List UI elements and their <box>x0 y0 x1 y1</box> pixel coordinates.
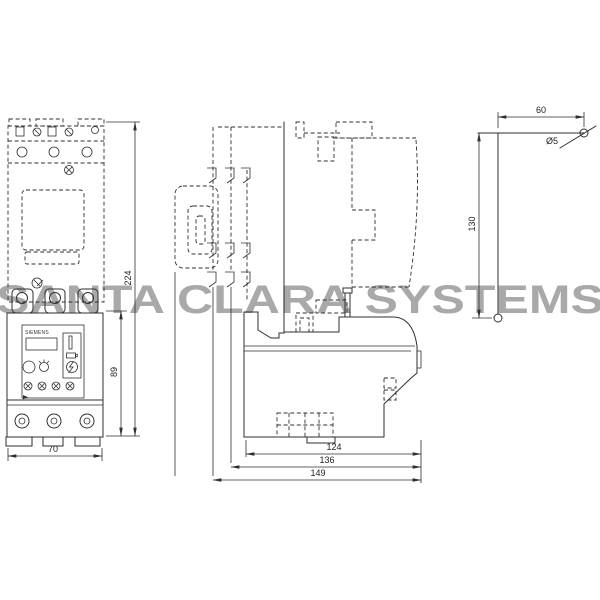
adjustment-dial <box>39 360 49 372</box>
dim-label-rod-length: 130 <box>467 216 477 231</box>
dim-label-depth-body: 124 <box>326 442 341 452</box>
front-contactor-dashed-outline <box>8 119 104 302</box>
pointer-mark <box>23 395 28 399</box>
dim-label-relay-height: 89 <box>109 367 119 377</box>
front-bottom-terminals <box>15 414 94 428</box>
reset-button <box>23 361 35 373</box>
watermark-text: SANTA CLARA SYSTEMS <box>0 278 600 322</box>
battery-icon <box>67 353 78 358</box>
dim-label-depth-mid: 136 <box>319 455 334 465</box>
selector-slot <box>69 336 72 349</box>
test-reset-button-icon <box>67 362 78 374</box>
dim-label-rod-offset: 60 <box>536 105 546 115</box>
front-overload-relay: SIEMENS <box>6 289 103 446</box>
brand-label: SIEMENS <box>25 330 49 336</box>
terminal-screw-row <box>24 382 74 390</box>
dim-label-overall-height: 224 <box>123 270 133 285</box>
engineering-drawing: SANTA CLARA SYSTEMS <box>0 0 600 600</box>
drawing-page: SANTA CLARA SYSTEMS <box>0 0 600 600</box>
dim-label-front-width: 70 <box>48 444 58 454</box>
dim-label-depth-overall: 149 <box>310 468 325 478</box>
side-dimensions: 124 136 149 <box>213 440 421 483</box>
lcd-display <box>26 338 57 350</box>
dim-label-rod-diameter: Ø5 <box>546 136 558 146</box>
